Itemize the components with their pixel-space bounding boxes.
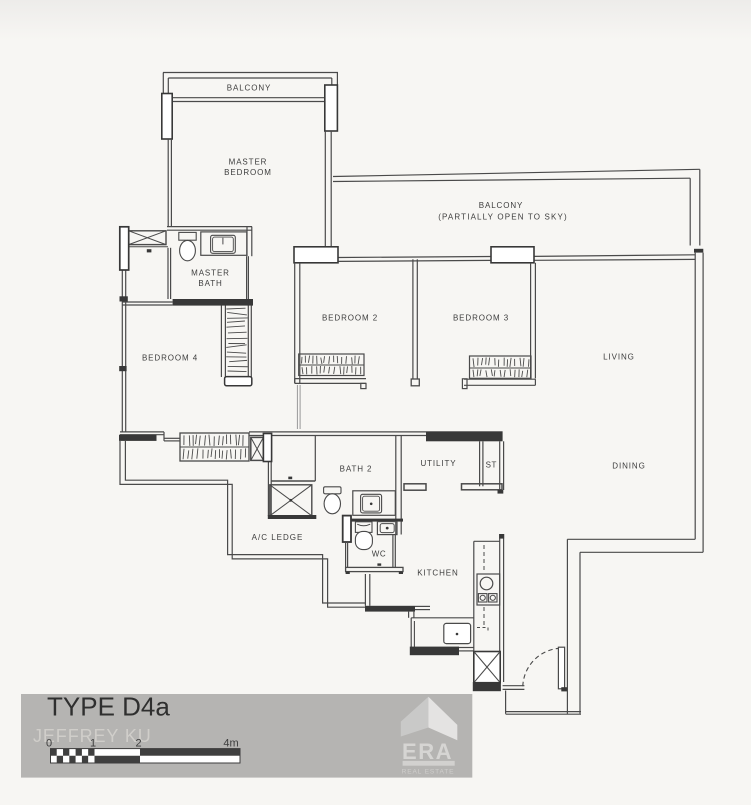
svg-text:A/C LEDGE: A/C LEDGE: [252, 533, 304, 542]
svg-text:BALCONY: BALCONY: [227, 84, 272, 93]
svg-text:BEDROOM 4: BEDROOM 4: [142, 354, 198, 363]
svg-text:BALCONY: BALCONY: [479, 201, 524, 210]
svg-text:ERA: ERA: [402, 739, 453, 764]
svg-text:BEDROOM 2: BEDROOM 2: [322, 313, 378, 322]
svg-text:BATH 2: BATH 2: [340, 464, 373, 473]
svg-text:BEDROOM: BEDROOM: [224, 168, 272, 177]
svg-text:ST: ST: [486, 461, 497, 470]
svg-text:1: 1: [90, 738, 96, 750]
svg-text:0: 0: [46, 738, 52, 750]
svg-text:TYPE D4a: TYPE D4a: [47, 692, 170, 722]
svg-text:KITCHEN: KITCHEN: [417, 569, 458, 578]
svg-text:(PARTIALLY OPEN TO SKY): (PARTIALLY OPEN TO SKY): [438, 213, 568, 222]
svg-text:DINING: DINING: [612, 462, 645, 471]
svg-text:UTILITY: UTILITY: [420, 459, 456, 468]
svg-text:WC: WC: [372, 550, 387, 559]
svg-text:BATH: BATH: [198, 279, 222, 288]
svg-text:MASTER: MASTER: [229, 158, 268, 167]
svg-text:REAL ESTATE: REAL ESTATE: [402, 769, 455, 776]
svg-text:LIVING: LIVING: [603, 353, 635, 362]
svg-text:4m: 4m: [223, 738, 238, 750]
svg-text:BEDROOM 3: BEDROOM 3: [453, 313, 509, 322]
svg-text:2: 2: [135, 738, 141, 750]
svg-text:MASTER: MASTER: [191, 268, 230, 277]
